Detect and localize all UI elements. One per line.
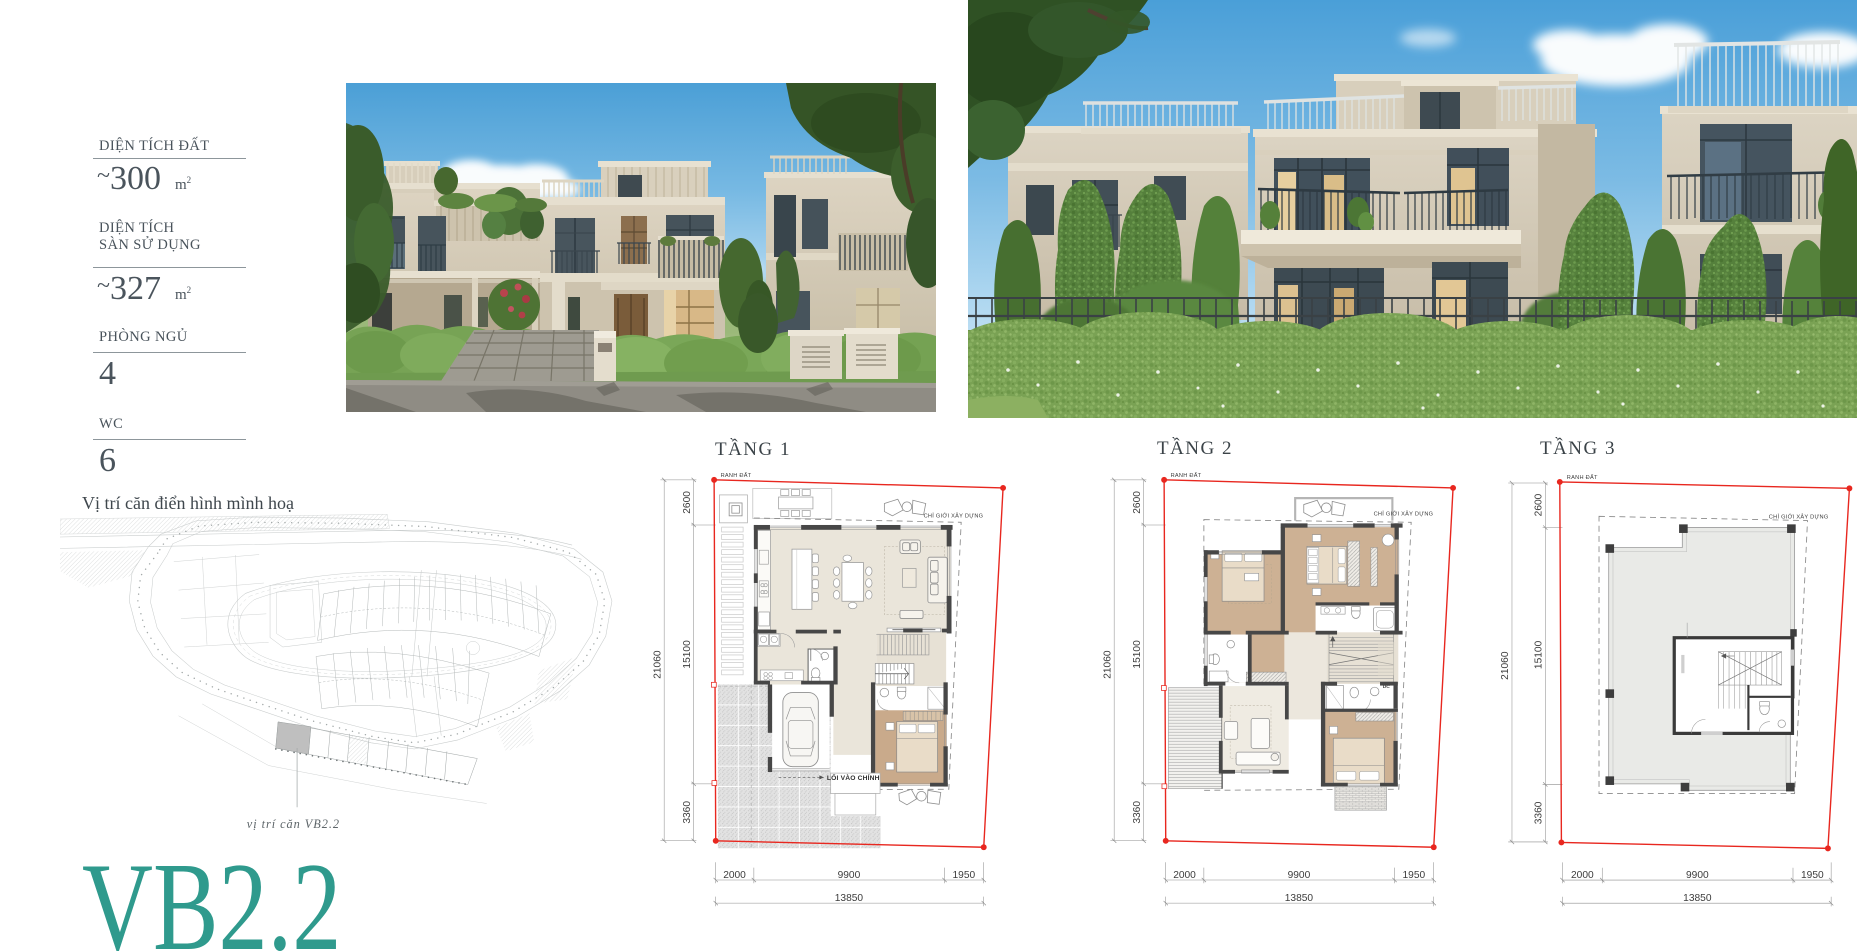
svg-text:RANH ĐẤT: RANH ĐẤT (1567, 474, 1598, 481)
svg-text:DC: DC (1383, 684, 1390, 690)
svg-text:13850: 13850 (835, 893, 864, 904)
svg-text:1950: 1950 (953, 870, 976, 881)
svg-text:21060: 21060 (652, 650, 663, 679)
svg-text:13850: 13850 (1683, 893, 1712, 904)
svg-text:CHỈ GIỚI XÂY DỰNG: CHỈ GIỚI XÂY DỰNG (1374, 510, 1434, 517)
svg-text:1950: 1950 (1403, 870, 1426, 881)
svg-text:2000: 2000 (723, 870, 746, 881)
svg-text:15100: 15100 (1132, 640, 1143, 669)
svg-text:13850: 13850 (1285, 893, 1314, 904)
svg-text:15100: 15100 (682, 640, 693, 669)
svg-text:2600: 2600 (682, 491, 693, 514)
svg-text:2000: 2000 (1173, 870, 1196, 881)
svg-text:vị trí căn VB2.2: vị trí căn VB2.2 (247, 817, 340, 831)
svg-text:2600: 2600 (1534, 493, 1545, 516)
svg-text:15100: 15100 (1534, 640, 1545, 669)
svg-text:9900: 9900 (1288, 870, 1311, 881)
svg-text:RANH ĐẤT: RANH ĐẤT (1171, 472, 1202, 479)
svg-text:3360: 3360 (682, 801, 693, 824)
svg-text:CHỈ GIỚI XÂY DỰNG: CHỈ GIỚI XÂY DỰNG (1769, 513, 1829, 520)
svg-text:2600: 2600 (1132, 491, 1143, 514)
svg-text:9900: 9900 (1686, 870, 1709, 881)
svg-text:3360: 3360 (1534, 801, 1545, 824)
svg-text:2000: 2000 (1571, 870, 1594, 881)
svg-text:RANH ĐẤT: RANH ĐẤT (721, 472, 752, 479)
svg-text:21060: 21060 (1102, 650, 1113, 679)
svg-text:9900: 9900 (838, 870, 861, 881)
svg-text:1950: 1950 (1801, 870, 1824, 881)
svg-text:21060: 21060 (1500, 651, 1511, 680)
svg-text:3360: 3360 (1132, 801, 1143, 824)
svg-text:CHỈ GIỚI XÂY DỰNG: CHỈ GIỚI XÂY DỰNG (924, 512, 984, 519)
